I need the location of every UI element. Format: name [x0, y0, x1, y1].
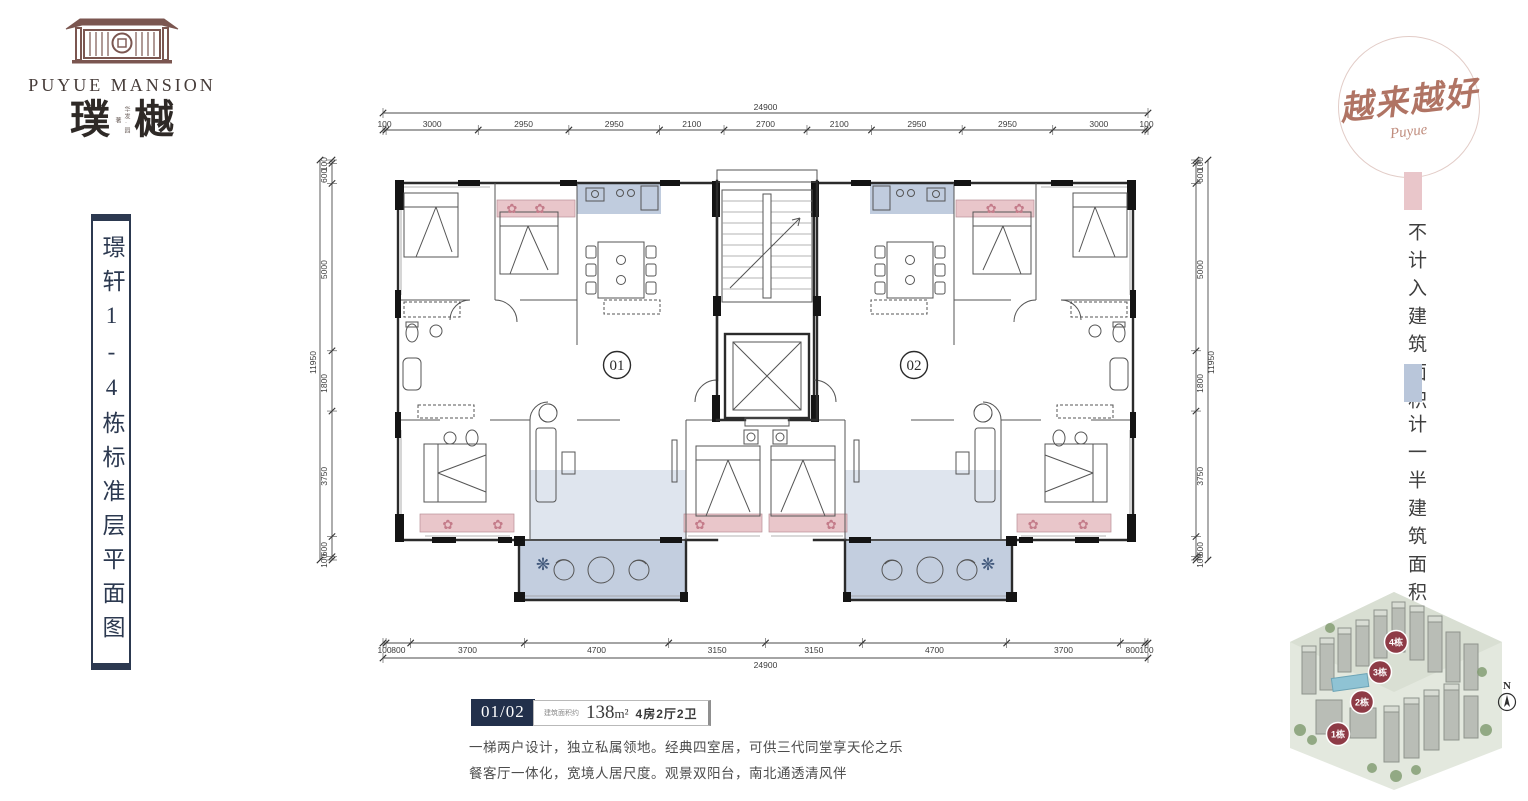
svg-text:800: 800: [391, 645, 405, 655]
svg-text:1800: 1800: [1195, 374, 1205, 393]
svg-text:100: 100: [1139, 645, 1153, 655]
svg-text:5000: 5000: [1195, 260, 1205, 279]
svg-text:2950: 2950: [907, 119, 926, 129]
svg-text:❋: ❋: [536, 555, 550, 575]
plan-title-plate: 璟轩1-4栋标准层平面图: [91, 216, 131, 668]
svg-text:4700: 4700: [925, 645, 944, 655]
svg-text:3150: 3150: [708, 645, 727, 655]
svg-text:✿: ✿: [493, 518, 504, 533]
stamp-script: Puyue: [1389, 121, 1428, 142]
svg-text:100: 100: [1195, 553, 1205, 567]
legend-swatch-blue: [1404, 364, 1422, 402]
svg-text:2950: 2950: [998, 119, 1017, 129]
area-info-box: 建筑面积约 138 m² 4房2厅2卫: [533, 700, 711, 726]
brand-cn-right: 樾: [134, 98, 174, 142]
badge-building-4: 4栋: [1385, 631, 1408, 654]
svg-text:01: 01: [610, 358, 625, 374]
svg-text:600: 600: [319, 542, 329, 556]
legend-item-half-area: 计一半建筑面积: [1402, 364, 1424, 610]
area-prefix-label: 建筑面积约: [544, 708, 579, 718]
svg-text:4栋: 4栋: [1389, 637, 1403, 648]
svg-text:3000: 3000: [423, 119, 442, 129]
svg-text:2950: 2950: [514, 119, 533, 129]
svg-text:✿: ✿: [443, 518, 454, 533]
svg-text:11950: 11950: [308, 351, 318, 374]
svg-text:✿: ✿: [535, 202, 546, 217]
svg-text:3750: 3750: [1195, 467, 1205, 486]
svg-text:100: 100: [319, 553, 329, 567]
svg-text:✿: ✿: [507, 202, 518, 217]
svg-text:1栋: 1栋: [1331, 729, 1345, 740]
gate-icon: [64, 14, 180, 66]
site-aerial-map: 1栋 2栋 3栋 4栋: [1276, 580, 1512, 801]
svg-text:2栋: 2栋: [1355, 697, 1369, 708]
svg-text:600: 600: [1195, 169, 1205, 183]
svg-text:11950: 11950: [1206, 351, 1216, 374]
floorplan-poster-page: { "brand": { "name_en": "PUYUE MANSION",…: [0, 0, 1528, 798]
svg-text:2100: 2100: [682, 119, 701, 129]
unit-number-badge: 01/02: [471, 699, 535, 726]
svg-text:24900: 24900: [754, 660, 778, 670]
plan-title: 璟轩1-4栋标准层平面图: [92, 235, 130, 649]
svg-text:4700: 4700: [587, 645, 606, 655]
room-layout-label: 4房2厅2卫: [636, 705, 698, 722]
calligraphy-stamp: 越来越好 Puyue: [1338, 36, 1480, 178]
unit-02-marker: 02: [901, 352, 928, 379]
area-unit: m²: [615, 706, 629, 722]
badge-building-2: 2栋: [1351, 691, 1374, 714]
compass-icon: [1497, 692, 1517, 712]
brand-name-cn: 璞 华发·园著 樾: [22, 98, 222, 142]
svg-text:3700: 3700: [458, 645, 477, 655]
unit-01-marker: 01: [604, 352, 631, 379]
svg-text:3750: 3750: [319, 467, 329, 486]
description-line-2: 餐客厅一体化，宽境人居尺度。观景双阳台，南北通透清风伴: [469, 761, 1169, 787]
svg-text:3700: 3700: [1054, 645, 1073, 655]
stair-elevator-core: [713, 170, 821, 426]
svg-text:3150: 3150: [804, 645, 823, 655]
dimension-annotations: 1003000295029502100270021002950295030001…: [308, 102, 1216, 670]
svg-text:02: 02: [907, 358, 922, 374]
description-line-1: 一梯两户设计，独立私属领地。经典四室居，可供三代同堂享天伦之乐: [469, 735, 1169, 761]
svg-text:600: 600: [1195, 542, 1205, 556]
svg-text:✿: ✿: [695, 518, 706, 533]
svg-text:100: 100: [1139, 119, 1153, 129]
badge-building-3: 3栋: [1369, 661, 1392, 684]
compass-n-label: N: [1494, 680, 1520, 692]
legend-swatch-pink: [1404, 172, 1422, 210]
brand-subtitle: 华发·园著: [113, 103, 131, 137]
svg-text:100: 100: [377, 119, 391, 129]
marketing-description: 一梯两户设计，独立私属领地。经典四室居，可供三代同堂享天伦之乐 餐客厅一体化，宽…: [469, 735, 1169, 787]
svg-text:2700: 2700: [756, 119, 775, 129]
svg-text:3000: 3000: [1089, 119, 1108, 129]
svg-text:100: 100: [377, 645, 391, 655]
svg-text:100: 100: [1195, 157, 1205, 171]
svg-text:800: 800: [1126, 645, 1140, 655]
svg-text:600: 600: [319, 169, 329, 183]
svg-text:2950: 2950: [605, 119, 624, 129]
svg-text:24900: 24900: [754, 102, 778, 112]
svg-text:1800: 1800: [319, 374, 329, 393]
brand-cn-left: 璞: [70, 98, 110, 142]
svg-text:2100: 2100: [830, 119, 849, 129]
brand-name-en: PUYUE MANSION: [22, 75, 222, 96]
area-value: 138: [586, 702, 615, 724]
svg-text:5000: 5000: [319, 260, 329, 279]
badge-building-1: 1栋: [1327, 723, 1350, 746]
svg-text:3栋: 3栋: [1373, 667, 1387, 678]
north-compass: N: [1494, 680, 1520, 717]
stamp-text: 越来越好: [1337, 65, 1482, 130]
brand-logo: PUYUE MANSION 璞 华发·园著 樾: [22, 14, 222, 142]
svg-text:100: 100: [319, 157, 329, 171]
